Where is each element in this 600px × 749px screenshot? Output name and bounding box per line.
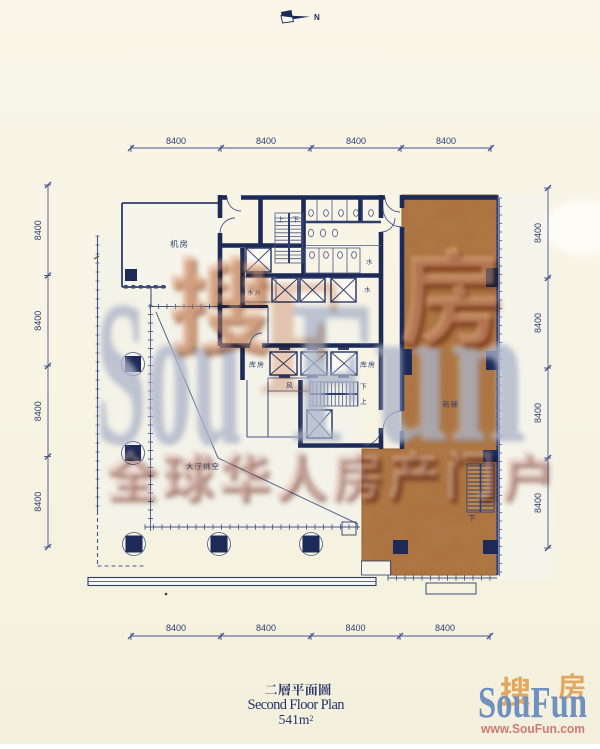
svg-text:8400: 8400 [533, 313, 543, 333]
svg-text:8400: 8400 [256, 136, 276, 146]
svg-text:8400: 8400 [33, 492, 43, 512]
svg-text:N: N [314, 13, 320, 22]
svg-text:8400: 8400 [345, 623, 365, 633]
svg-text:www.SouFun.com: www.SouFun.com [480, 721, 585, 736]
svg-text:8400: 8400 [166, 623, 186, 633]
svg-text:F: F [258, 244, 344, 430]
svg-text:8400: 8400 [33, 401, 43, 421]
svg-text:541m2: 541m2 [279, 712, 314, 727]
svg-text:8400: 8400 [435, 623, 455, 633]
svg-text:8400: 8400 [33, 311, 43, 331]
svg-text:8400: 8400 [533, 403, 543, 423]
svg-text:8400: 8400 [346, 136, 366, 146]
svg-text:8400: 8400 [533, 223, 543, 243]
svg-text:Second Floor Plan: Second Floor Plan [248, 697, 346, 713]
svg-text:8400: 8400 [166, 136, 186, 146]
svg-text:8400: 8400 [33, 220, 43, 240]
svg-text:8400: 8400 [533, 493, 543, 513]
svg-text:8400: 8400 [436, 136, 456, 146]
svg-text:8400: 8400 [256, 623, 276, 633]
svg-text:SouFun: SouFun [478, 678, 587, 727]
